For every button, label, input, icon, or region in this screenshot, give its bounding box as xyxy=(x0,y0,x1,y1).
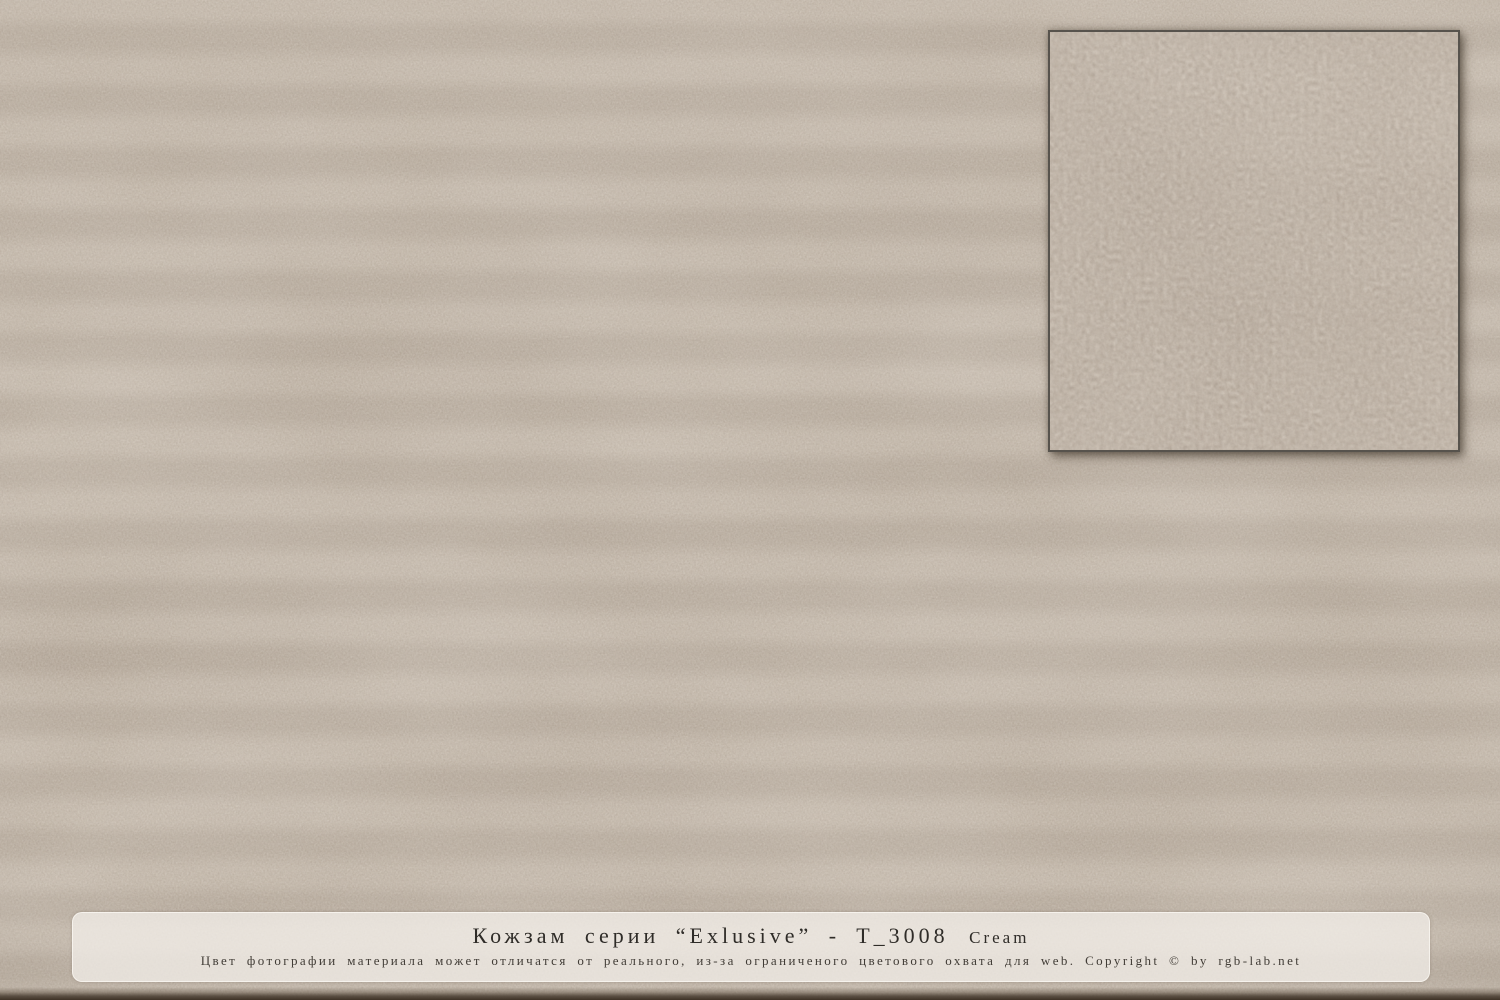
material-sample-photo: Кожзам серии “Exlusive” - T_3008 Cream Ц… xyxy=(0,0,1500,1000)
material-title: Кожзам серии “Exlusive” - T_3008 Cream xyxy=(73,923,1429,948)
caption-bar: Кожзам серии “Exlusive” - T_3008 Cream Ц… xyxy=(72,912,1430,982)
disclaimer-text: Цвет фотографии материала может отличатс… xyxy=(73,953,1429,969)
material-title-grade: Cream xyxy=(969,928,1029,947)
zoom-detail-texture xyxy=(1050,32,1458,450)
material-title-main: Кожзам серии “Exlusive” - T_3008 xyxy=(473,923,949,948)
material-bottom-edge-shadow xyxy=(0,987,1500,1000)
zoom-detail-swatch xyxy=(1048,30,1460,452)
